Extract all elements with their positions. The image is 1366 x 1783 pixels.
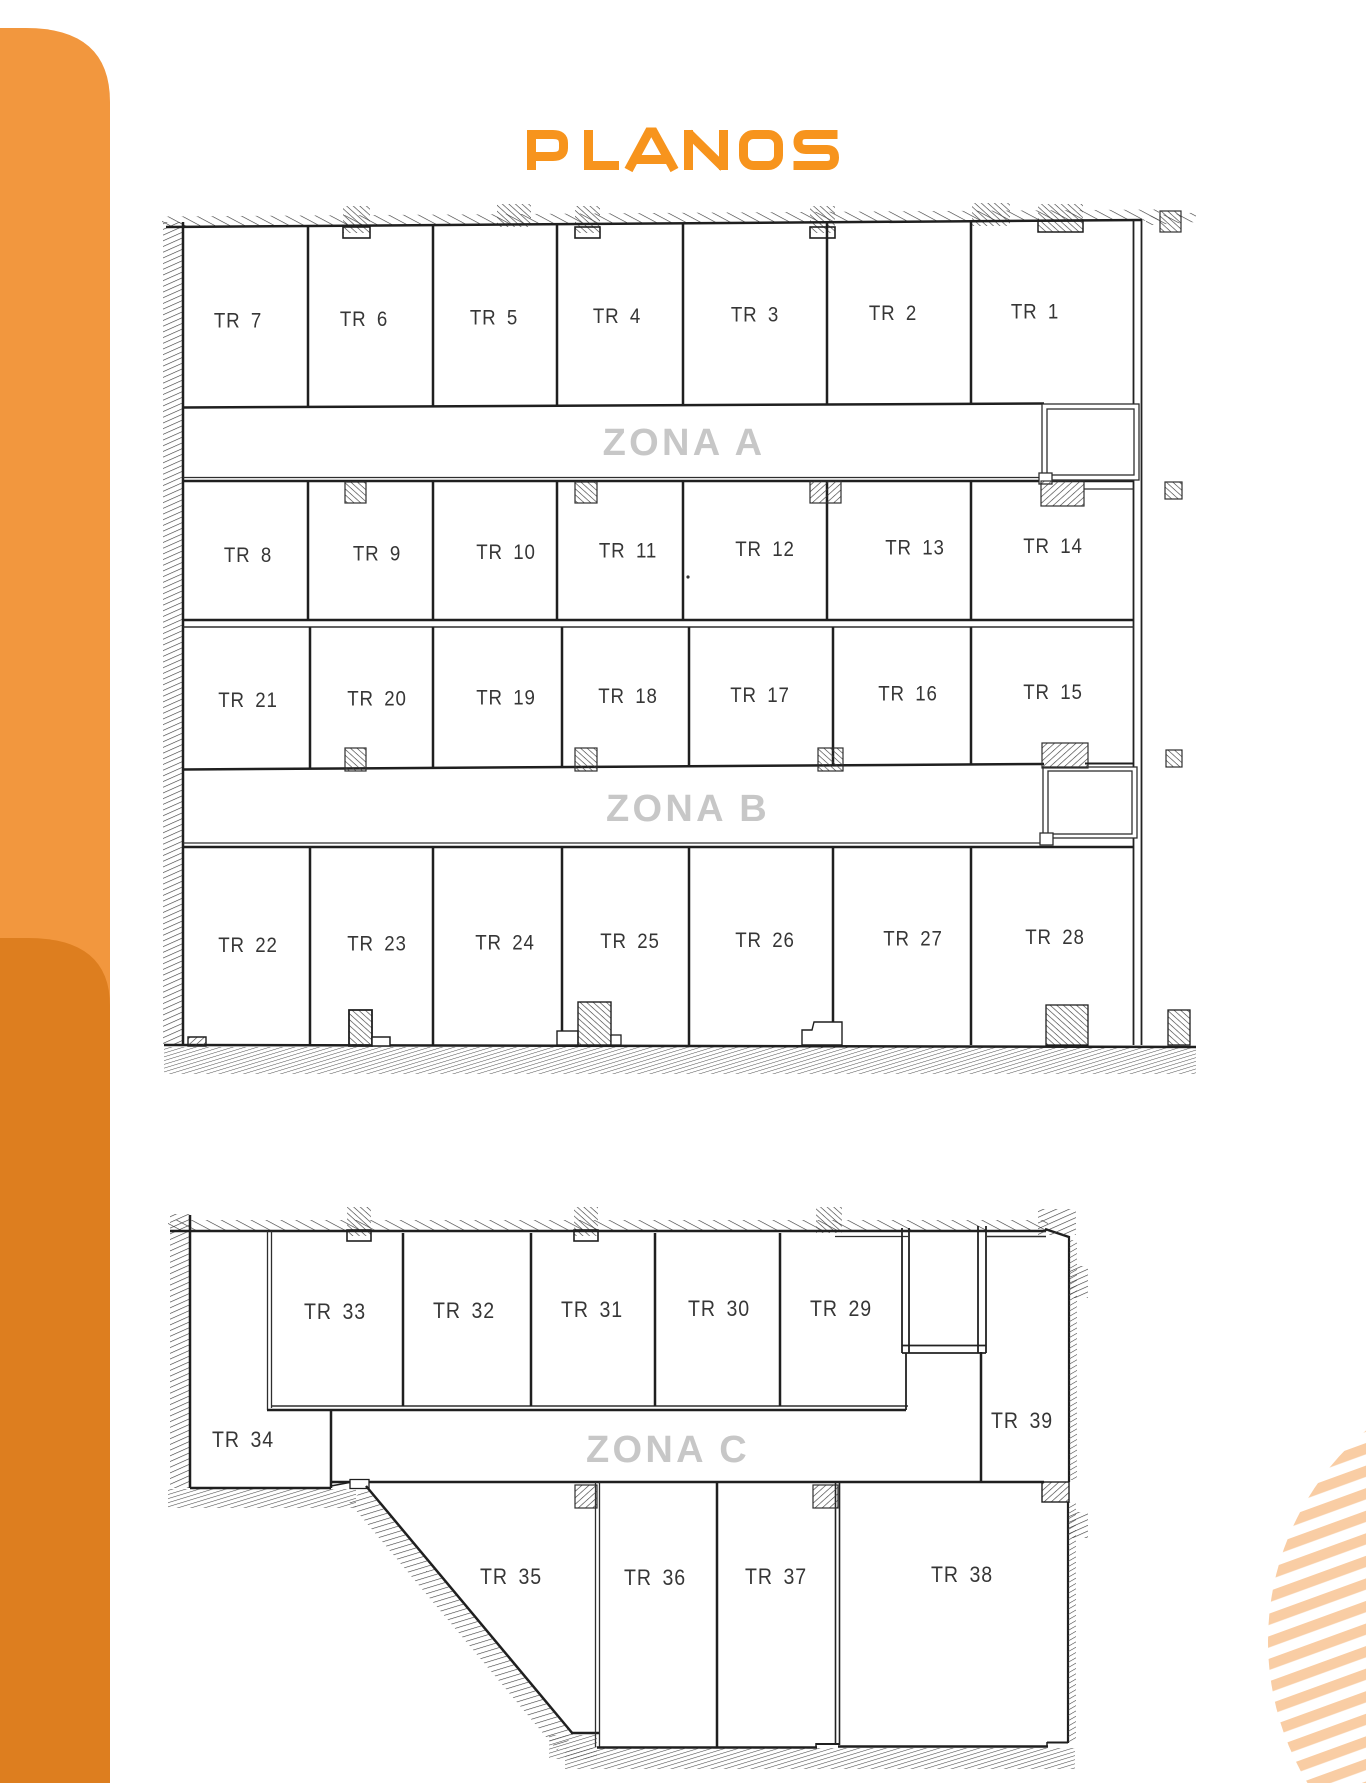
svg-text:TR 29: TR 29: [810, 1297, 872, 1322]
svg-text:ZONA A: ZONA A: [603, 422, 766, 464]
svg-text:TR 27: TR 27: [883, 927, 943, 950]
svg-text:TR 18: TR 18: [598, 685, 658, 708]
svg-text:TR 39: TR 39: [991, 1409, 1053, 1434]
svg-text:TR 1: TR 1: [1011, 300, 1059, 323]
svg-text:TR 28: TR 28: [1025, 926, 1085, 949]
svg-text:TR 8: TR 8: [224, 544, 272, 567]
svg-text:TR 10: TR 10: [476, 541, 536, 564]
svg-text:TR 5: TR 5: [470, 306, 518, 329]
svg-text:TR 4: TR 4: [593, 305, 641, 328]
svg-text:TR 15: TR 15: [1023, 681, 1083, 704]
svg-text:TR 22: TR 22: [218, 934, 278, 957]
svg-text:TR 14: TR 14: [1023, 535, 1083, 558]
svg-text:TR 13: TR 13: [885, 536, 945, 559]
svg-text:TR 11: TR 11: [599, 539, 657, 562]
svg-text:TR 34: TR 34: [212, 1428, 274, 1453]
svg-text:TR 24: TR 24: [475, 931, 535, 954]
svg-text:TR 38: TR 38: [931, 1563, 993, 1588]
svg-text:TR 23: TR 23: [347, 933, 407, 956]
svg-text:TR 21: TR 21: [218, 689, 278, 712]
svg-text:ZONA B: ZONA B: [606, 788, 770, 830]
svg-text:TR 37: TR 37: [745, 1565, 807, 1590]
svg-text:TR 3: TR 3: [731, 303, 779, 326]
svg-text:TR 31: TR 31: [561, 1298, 623, 1323]
svg-text:TR 19: TR 19: [476, 686, 536, 709]
svg-text:TR 33: TR 33: [304, 1300, 366, 1325]
svg-text:TR 32: TR 32: [433, 1299, 495, 1324]
svg-text:TR 6: TR 6: [340, 308, 388, 331]
svg-text:TR 16: TR 16: [878, 682, 938, 705]
svg-text:TR 35: TR 35: [480, 1565, 542, 1590]
svg-text:TR 36: TR 36: [624, 1566, 686, 1591]
svg-text:TR 17: TR 17: [730, 684, 790, 707]
svg-text:TR 12: TR 12: [735, 538, 795, 561]
svg-text:TR 20: TR 20: [347, 688, 407, 711]
svg-text:TR 30: TR 30: [688, 1297, 750, 1322]
svg-text:TR 26: TR 26: [735, 929, 795, 952]
svg-text:TR 9: TR 9: [353, 542, 401, 565]
svg-text:ZONA C: ZONA C: [586, 1429, 750, 1471]
svg-text:TR 25: TR 25: [600, 930, 660, 953]
svg-text:TR 2: TR 2: [869, 302, 917, 325]
svg-text:TR 7: TR 7: [214, 309, 262, 332]
